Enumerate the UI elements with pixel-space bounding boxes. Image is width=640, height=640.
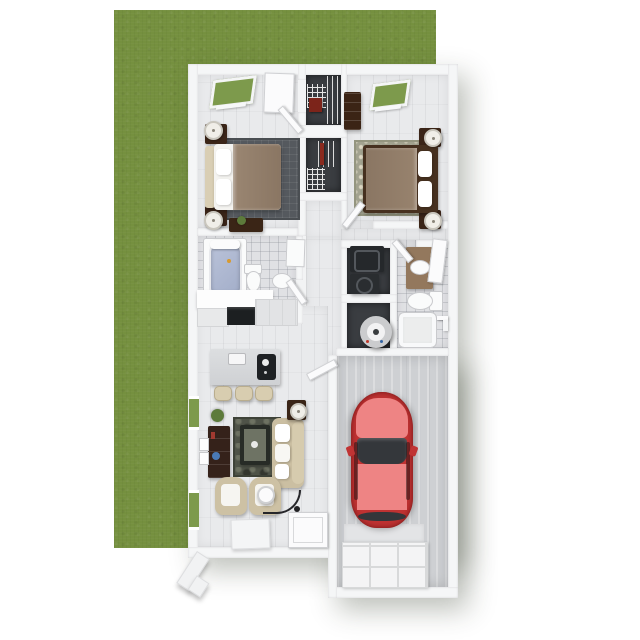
car-windshield [357,438,407,464]
wall-garage-bottom [328,587,458,598]
island-cooktop-burner [262,359,269,366]
bedroom2-pillow-1 [418,151,432,177]
arc-floor-lamp-shade [257,486,275,504]
bathroom2-tub [398,312,437,348]
bedroom1-pillow-1 [216,149,231,175]
wall-bottom-main [188,547,336,558]
bathroom1-tub [209,244,242,296]
bar-stool-3 [255,386,273,401]
bar-stool-1 [214,386,232,401]
bedroom1-blanket [233,144,281,210]
car-cabin-roof [357,464,407,510]
wall-garage-top [336,348,449,356]
front-door-inset [293,517,323,543]
floorplan-render [0,0,640,640]
wall-closet-divider2 [298,192,347,201]
hallway-floor-top [306,201,341,240]
wall-garage-left [328,355,337,598]
wall-right [448,64,458,598]
living-window-2 [189,490,199,530]
bedroom1-lamp-top [204,121,223,140]
towel [443,320,448,331]
closet2-hanging-clothes [320,143,324,165]
car-hood [356,398,408,438]
car-rear-window [358,512,406,521]
garage-door [342,542,428,588]
bedroom1-pillow-2 [216,179,231,205]
island-cooktop [257,354,276,380]
rubber-duck [227,259,231,263]
kitchen-counter-left [197,308,229,327]
bathroom2-toilet-bowl [407,292,433,310]
bedroom2-blanket [366,148,417,210]
car-side-window-left [354,442,358,500]
sofa-back [292,422,304,484]
sofa-pillow-1 [275,424,290,442]
entry-mat [230,518,270,549]
wall-laundry-divider [341,294,397,303]
island-cooktop-knob [264,371,267,374]
living-plant [211,409,224,422]
bedroom2-pillow-2 [418,181,432,207]
coffee-table-decor [251,441,258,448]
bathroom1-wall-cabinet [286,239,306,268]
island-sink [228,353,246,365]
washer-door [354,250,380,272]
closet1-wire-rods [327,76,340,124]
bedroom1-desk [229,218,263,232]
car [349,390,415,532]
dryer-door [356,277,373,294]
console-globe [212,452,220,460]
bedroom1-plant [237,216,246,225]
closet2-wire-shelf [307,168,325,190]
wall-art-2 [199,452,209,465]
wall-art-1 [199,438,209,451]
wall-bed1-right-a [298,64,306,80]
water-heater-cold-pipe [380,340,383,343]
kitchen-range [227,307,255,325]
water-heater-vent [373,329,379,335]
console-book-red [211,432,215,439]
bathroom1-shower-curtain [210,240,240,249]
armchair-1-cushion [221,484,240,506]
bedroom1-lamp-bottom [204,211,223,230]
living-window-1 [189,396,199,430]
bathroom2-sink [410,260,430,275]
water-heater-hot-pipe [366,340,369,343]
wall-top [188,64,458,75]
wall-closet-divider1 [298,125,347,138]
sofa-pillow-3 [275,464,289,479]
wall-closet-right-b [341,137,347,229]
bedroom2-dresser [344,92,361,130]
bedroom2-lamp-bottom [424,212,442,230]
bedroom2-lamp-top [424,129,442,147]
side-table-lamp [290,403,307,420]
kitchen-counter-corner [255,299,298,326]
sofa-pillow-2 [275,444,290,462]
bar-stool-2 [235,386,253,401]
closet1-hanging-clothes [309,98,322,112]
